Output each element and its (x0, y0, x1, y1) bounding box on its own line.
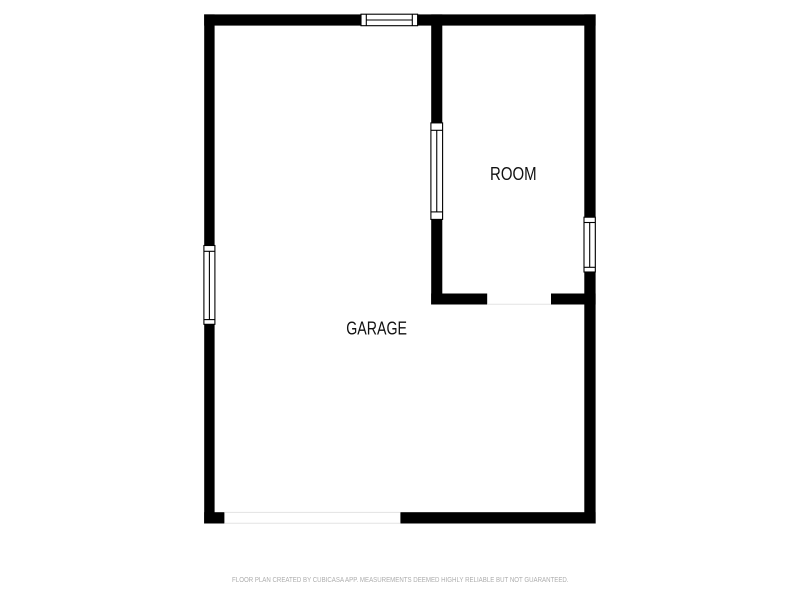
svg-text:ROOM: ROOM (490, 163, 537, 184)
svg-text:GARAGE: GARAGE (346, 318, 407, 339)
svg-text:FLOOR PLAN CREATED BY CUBICASA: FLOOR PLAN CREATED BY CUBICASA APP. MEAS… (232, 577, 569, 584)
